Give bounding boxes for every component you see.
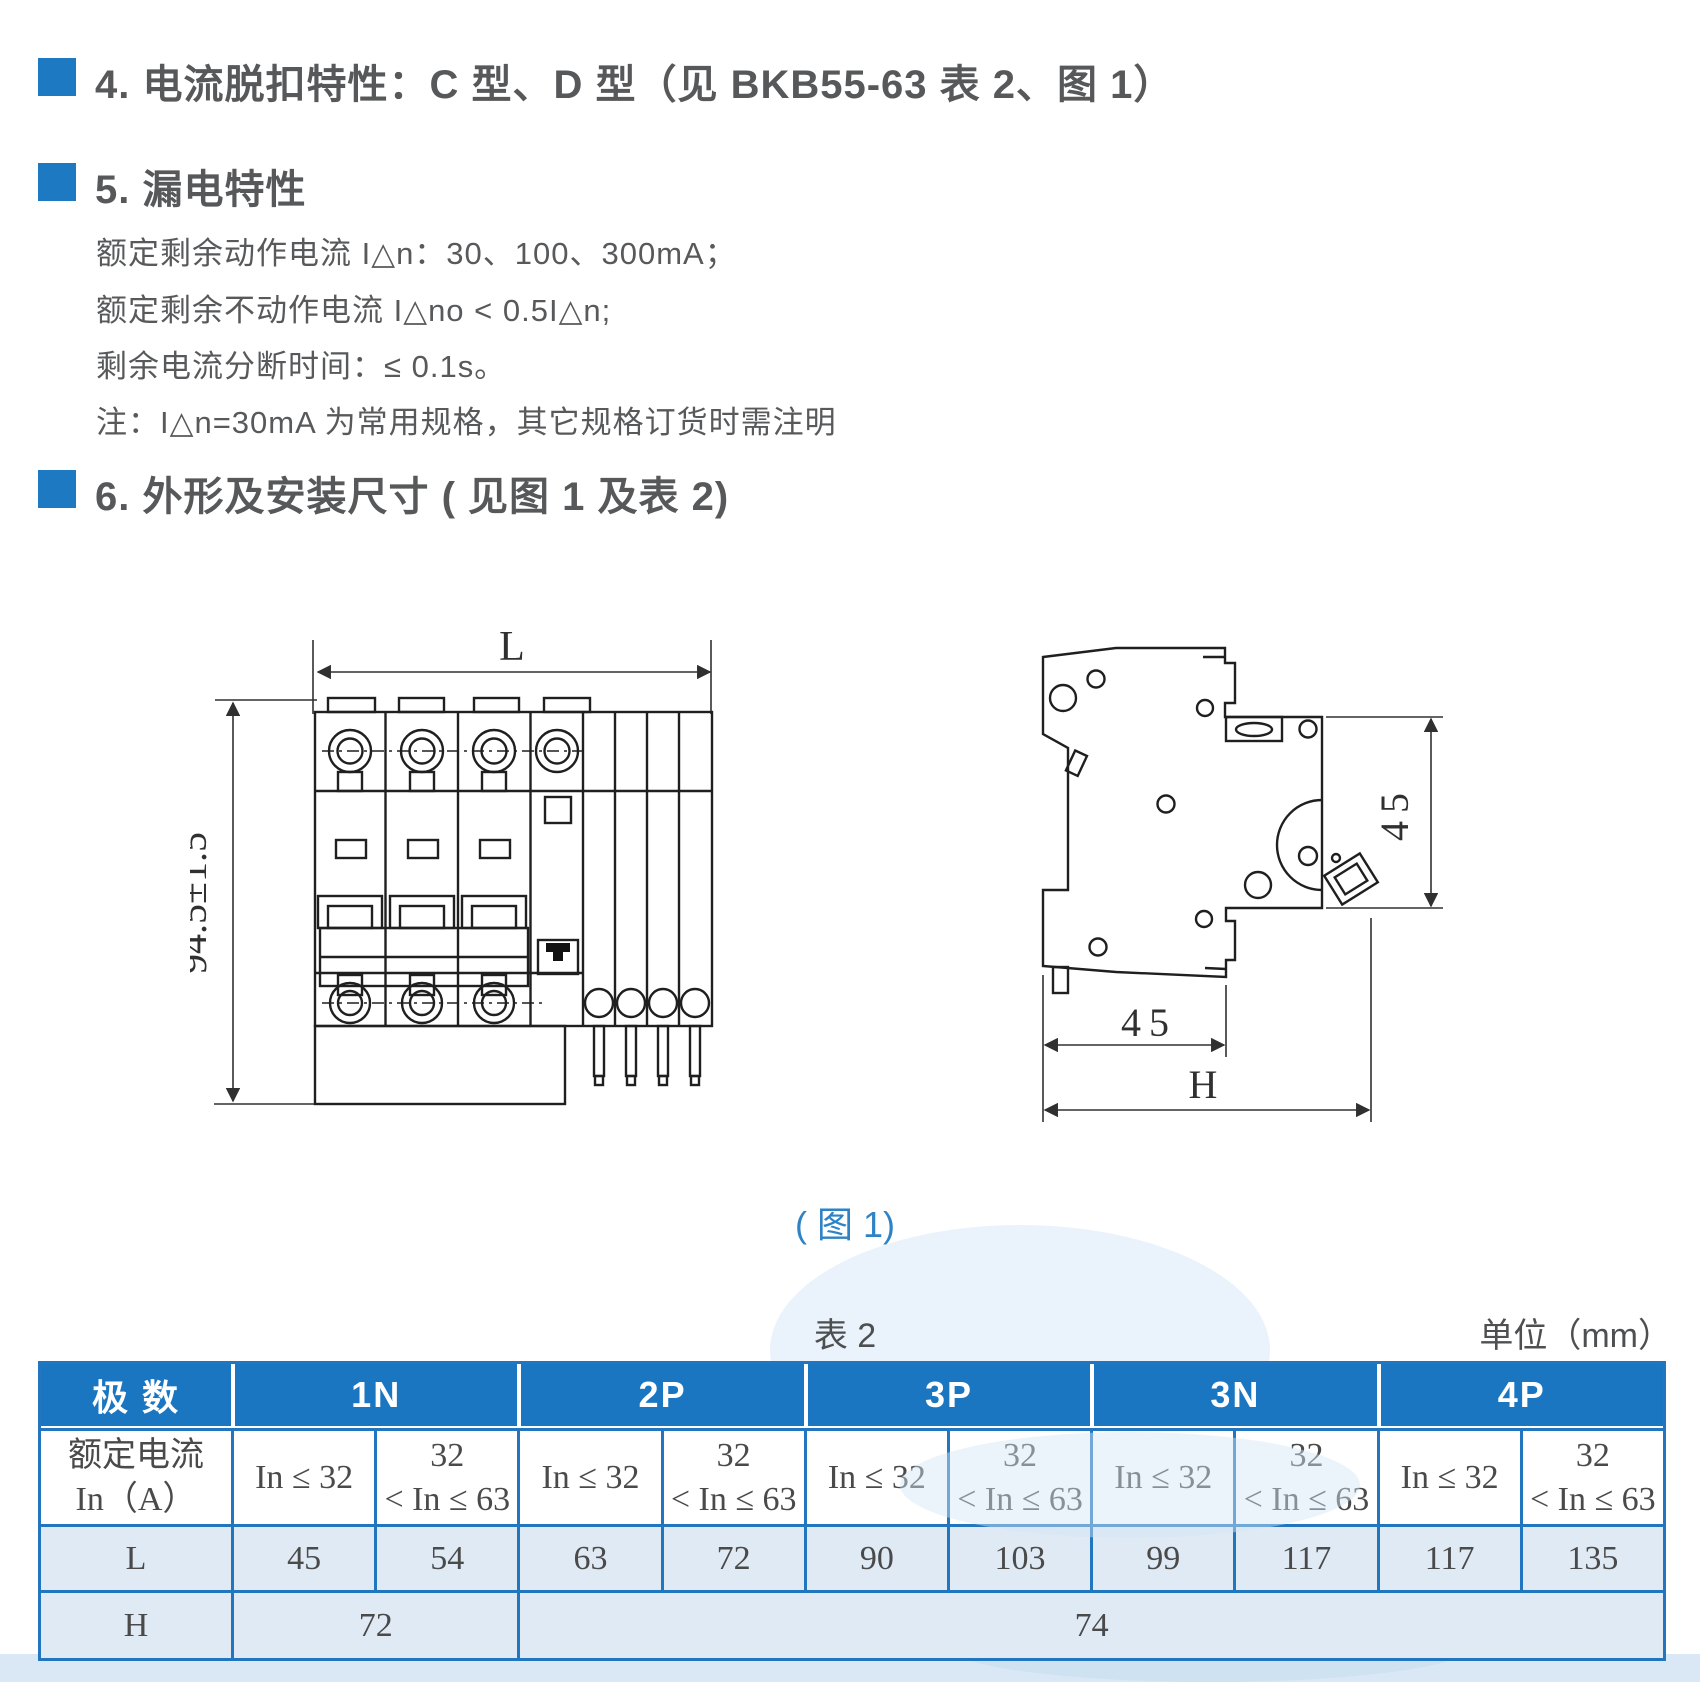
pole-group-header: 3N [1090,1364,1376,1428]
rated-current-label: 额定电流 In（A） [41,1428,231,1524]
table-unit-note: 单位（mm） [1420,1308,1672,1357]
L-value-cell: 117 [1377,1524,1520,1590]
table-header-row: 极 数 1N 2P 3P 3N 4P [41,1364,1663,1428]
current-range-cell: 32 < In ≤ 63 [1520,1428,1663,1524]
current-range-cell: 32 < In ≤ 63 [661,1428,804,1524]
L-value-cell: 63 [517,1524,660,1590]
pole-group-header: 3P [804,1364,1090,1428]
current-range-cell: 32 < In ≤ 63 [947,1428,1090,1524]
front-view-drawing: L 94.5±1.5 [190,575,770,1150]
leakage-spec-line: 注：I△n=30mA 为常用规格，其它规格订货时需注明 [96,397,837,442]
rated-current-row: 额定电流 In（A） In ≤ 32 32 < In ≤ 63 In ≤ 32 … [41,1428,1663,1524]
H-row-label: H [41,1590,231,1658]
section-4-title: 4. 电流脱扣特性：C 型、D 型（见 BKB55-63 表 2、图 1） [95,52,1174,110]
side-view-drawing: 45 45 H [940,575,1450,1135]
width-L-row: L 45 54 63 72 90 103 99 117 117 135 [41,1524,1663,1590]
current-range-cell: 32 < In ≤ 63 [374,1428,517,1524]
dim-label-45-bottom: 45 [1121,1000,1177,1045]
dim-label-94-5: 94.5±1.5 [190,832,215,974]
section-4-bullet-icon [38,58,76,96]
table-2-caption: 表 2 [745,1308,945,1357]
current-range-cell: In ≤ 32 [517,1428,660,1524]
section-6-title: 6. 外形及安装尺寸 ( 见图 1 及表 2) [95,464,729,522]
datasheet-page: 4. 电流脱扣特性：C 型、D 型（见 BKB55-63 表 2、图 1） 5.… [0,0,1700,1682]
L-value-cell: 45 [231,1524,374,1590]
dim-label-H: H [1189,1062,1218,1107]
pole-group-header: 1N [231,1364,517,1428]
dimension-table: 极 数 1N 2P 3P 3N 4P 额定电流 In（A） In ≤ 32 32… [38,1361,1666,1661]
L-value-cell: 135 [1520,1524,1663,1590]
current-range-cell: In ≤ 32 [231,1428,374,1524]
current-range-cell: In ≤ 32 [804,1428,947,1524]
dim-label-45-vertical: 45 [1372,785,1417,841]
section-5-bullet-icon [38,163,76,201]
section-6-bullet-icon [38,470,76,508]
leakage-spec-line: 额定剩余动作电流 I△n：30、100、300mA； [96,228,737,273]
pole-group-header: 4P [1377,1364,1663,1428]
L-value-cell: 54 [374,1524,517,1590]
section-5-title: 5. 漏电特性 [95,157,306,215]
height-H-row: H 72 74 [41,1590,1663,1658]
L-value-cell: 90 [804,1524,947,1590]
pole-group-header: 2P [517,1364,803,1428]
current-range-cell: In ≤ 32 [1090,1428,1233,1524]
current-range-cell: In ≤ 32 [1377,1428,1520,1524]
dim-label-L: L [499,624,525,670]
figure-1-caption: ( 图 1) [700,1196,990,1248]
leakage-spec-line: 额定剩余不动作电流 I△no < 0.5I△n; [96,285,611,330]
test-button-icon [546,943,570,961]
current-range-cell: 32 < In ≤ 63 [1233,1428,1376,1524]
H-value-cell-rest: 74 [517,1590,1663,1658]
corner-header-cell: 极 数 [41,1364,231,1428]
L-value-cell: 99 [1090,1524,1233,1590]
L-row-label: L [41,1524,231,1590]
L-value-cell: 117 [1233,1524,1376,1590]
leakage-spec-line: 剩余电流分断时间：≤ 0.1s。 [96,341,506,386]
L-value-cell: 72 [661,1524,804,1590]
L-value-cell: 103 [947,1524,1090,1590]
H-value-cell-1N: 72 [231,1590,517,1658]
